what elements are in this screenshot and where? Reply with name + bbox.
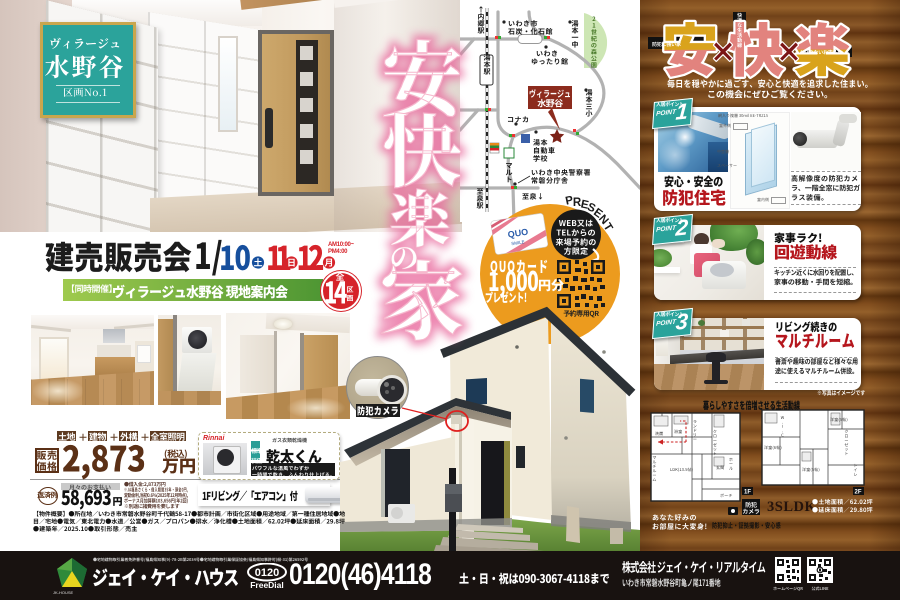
svg-text:FreeDial: FreeDial [250, 580, 284, 590]
svg-text:1F: 1F [744, 490, 751, 496]
svg-text:0120: 0120 [255, 567, 279, 579]
svg-text:2F: 2F [855, 490, 862, 496]
